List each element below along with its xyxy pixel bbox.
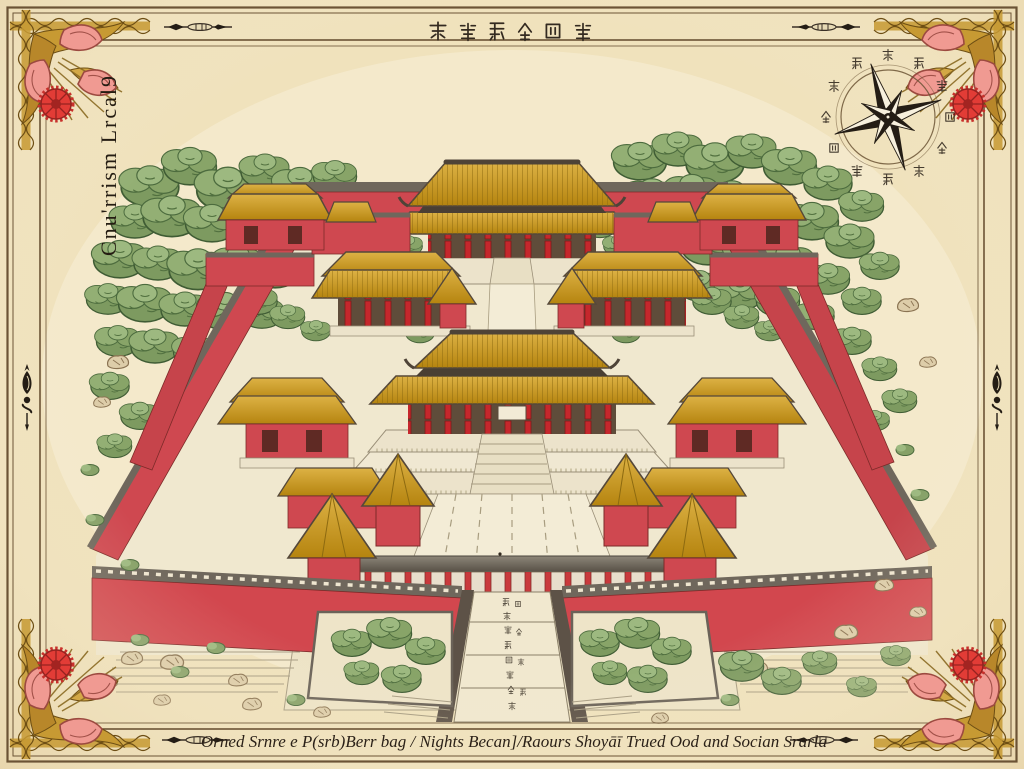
vignette-overlay <box>0 0 1024 769</box>
map-illustration: Cnu'rrism Lrcal9 Orned Srnre e P(srb)Ber… <box>0 0 1024 769</box>
bottom-caption: Orned Srnre e P(srb)Berr bag / Nights Be… <box>201 732 827 751</box>
map-title-vertical: Cnu'rrism Lrcal9 <box>96 74 121 256</box>
map-page: Cnu'rrism Lrcal9 Orned Srnre e P(srb)Ber… <box>0 0 1024 769</box>
